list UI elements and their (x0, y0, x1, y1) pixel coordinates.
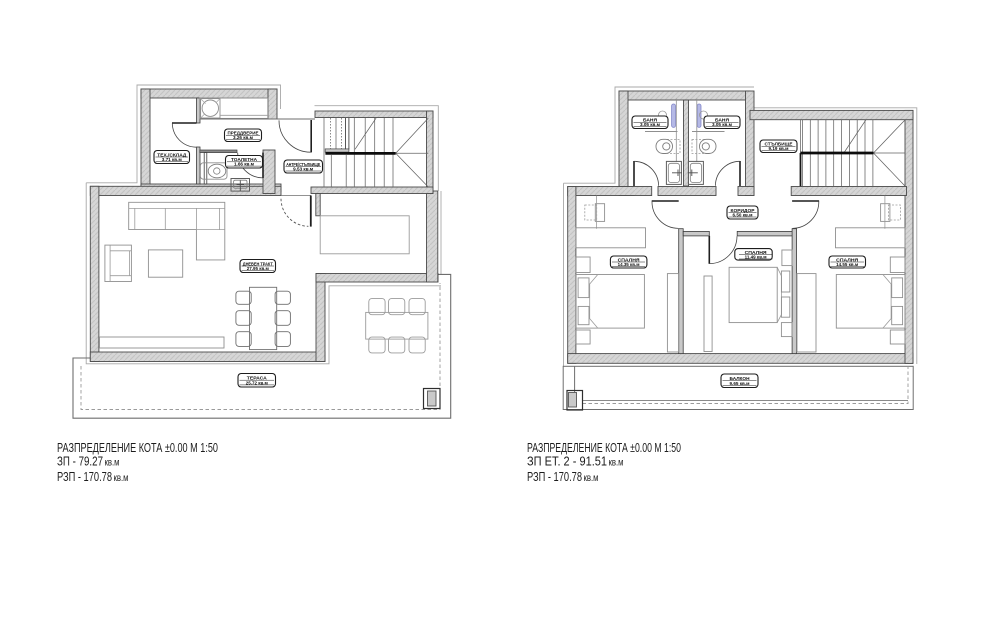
svg-text:3.71 кв.м: 3.71 кв.м (162, 157, 182, 162)
svg-text:11.49 кв.м: 11.49 кв.м (745, 255, 767, 260)
svg-text:ЗП - 79.27кв.м: ЗП - 79.27кв.м (57, 453, 120, 468)
svg-text:25.72 кв.м: 25.72 кв.м (246, 380, 268, 385)
svg-text:27.95 кв.м: 27.95 кв.м (247, 266, 269, 271)
svg-text:14.55 кв.м: 14.55 кв.м (836, 262, 858, 267)
svg-text:3.26 кв.м: 3.26 кв.м (233, 135, 253, 140)
svg-text:3.05 кв.м: 3.05 кв.м (712, 122, 732, 127)
svg-text:РЗП - 170.78кв.м: РЗП - 170.78кв.м (57, 469, 129, 484)
svg-text:9.65 кв.м: 9.65 кв.м (730, 381, 750, 386)
svg-text:РЗП - 170.78кв.м: РЗП - 170.78кв.м (527, 469, 599, 484)
svg-text:9.53 кв.м: 9.53 кв.м (293, 167, 313, 172)
svg-text:1.66 кв.м: 1.66 кв.м (234, 162, 254, 167)
svg-text:9.19 кв.м: 9.19 кв.м (769, 146, 789, 151)
svg-text:ЗП ЕТ. 2 - 91.51кв.м: ЗП ЕТ. 2 - 91.51кв.м (527, 453, 624, 468)
svg-text:6.50 кв.м: 6.50 кв.м (733, 213, 753, 218)
svg-text:14.35 кв.м: 14.35 кв.м (618, 262, 640, 267)
svg-text:3.05 кв.м: 3.05 кв.м (640, 122, 660, 127)
